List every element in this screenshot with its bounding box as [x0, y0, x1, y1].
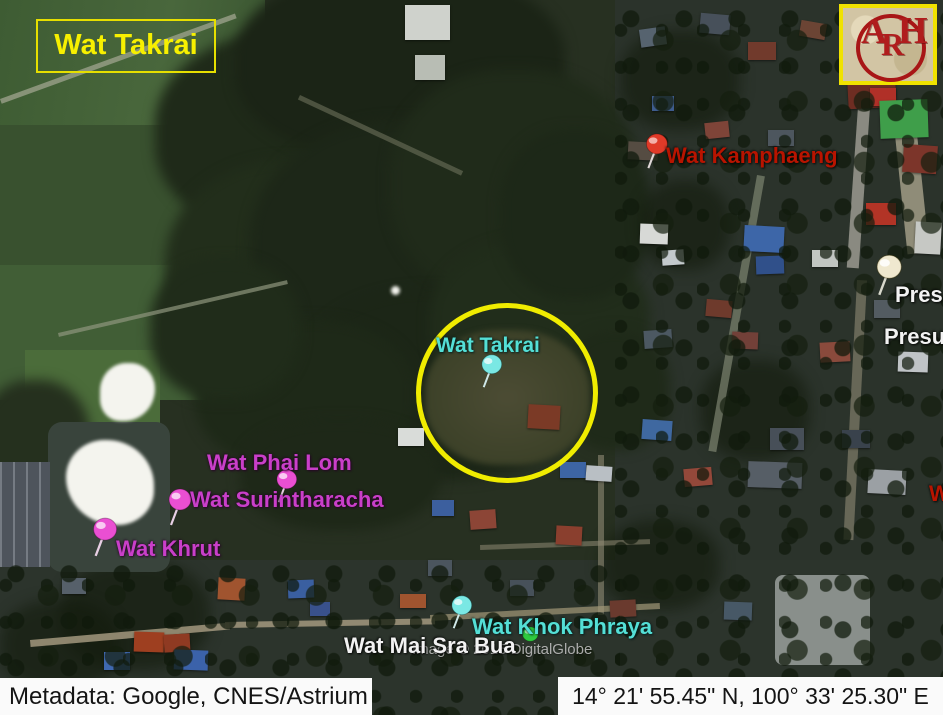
slide-title-box: Wat Takrai: [36, 19, 216, 73]
pin-highlight: [484, 358, 492, 364]
metadata-text: Metadata: Google, CNES/Astrium: [9, 683, 368, 710]
pin-needle: [454, 613, 460, 628]
label-presu[interactable]: Presu: [884, 324, 943, 350]
pin-needle: [484, 372, 490, 387]
label-wat-surintharacha[interactable]: Wat Surintharacha: [190, 487, 384, 513]
pin-highlight: [649, 137, 658, 143]
pin-highlight: [171, 493, 180, 500]
label-clipped-w[interactable]: W: [929, 481, 943, 507]
wat-surintharacha-pushpin-icon[interactable]: [163, 487, 193, 527]
map-viewport[interactable]: Wat Kamphaeng Pres Presu Wat Takrai Wat …: [0, 0, 943, 715]
arh-logo: A R H: [839, 4, 937, 85]
label-pres[interactable]: Pres: [895, 282, 943, 308]
label-wat-takrai[interactable]: Wat Takrai: [436, 334, 540, 358]
pin-head: [94, 518, 117, 540]
label-wat-kamphaeng[interactable]: Wat Kamphaeng: [666, 143, 838, 169]
pin-head: [646, 134, 667, 154]
slide-title: Wat Takrai: [54, 29, 197, 61]
pin-needle: [171, 508, 178, 525]
pin-head: [452, 596, 472, 615]
pin-head: [169, 489, 191, 510]
label-wat-mai-sra-bua[interactable]: Wat Mai Sra Bua: [344, 633, 516, 659]
highlight-circle: [416, 303, 598, 483]
pin-highlight: [96, 522, 106, 529]
pin-highlight: [454, 599, 462, 605]
pin-head: [877, 255, 901, 278]
pin-highlight: [880, 259, 890, 266]
wat-takrai-pushpin-icon[interactable]: [476, 353, 504, 389]
coordinates-text: 14° 21' 55.45" N, 100° 33' 25.30" E: [572, 683, 929, 709]
pin-needle: [96, 538, 103, 556]
label-wat-khrut[interactable]: Wat Khrut: [116, 536, 220, 562]
wat-khok-phraya-pushpin-icon[interactable]: [446, 594, 474, 630]
arh-logo-letter-h: H: [898, 9, 928, 53]
label-wat-phai-lom[interactable]: Wat Phai Lom: [207, 450, 352, 476]
pin-needle: [879, 276, 886, 295]
metadata-bar: Metadata: Google, CNES/Astrium: [0, 678, 372, 715]
wat-khrut-pushpin-icon[interactable]: [87, 516, 119, 558]
pin-needle: [648, 152, 654, 168]
coordinates-bar: 14° 21' 55.45" N, 100° 33' 25.30" E: [558, 677, 943, 715]
